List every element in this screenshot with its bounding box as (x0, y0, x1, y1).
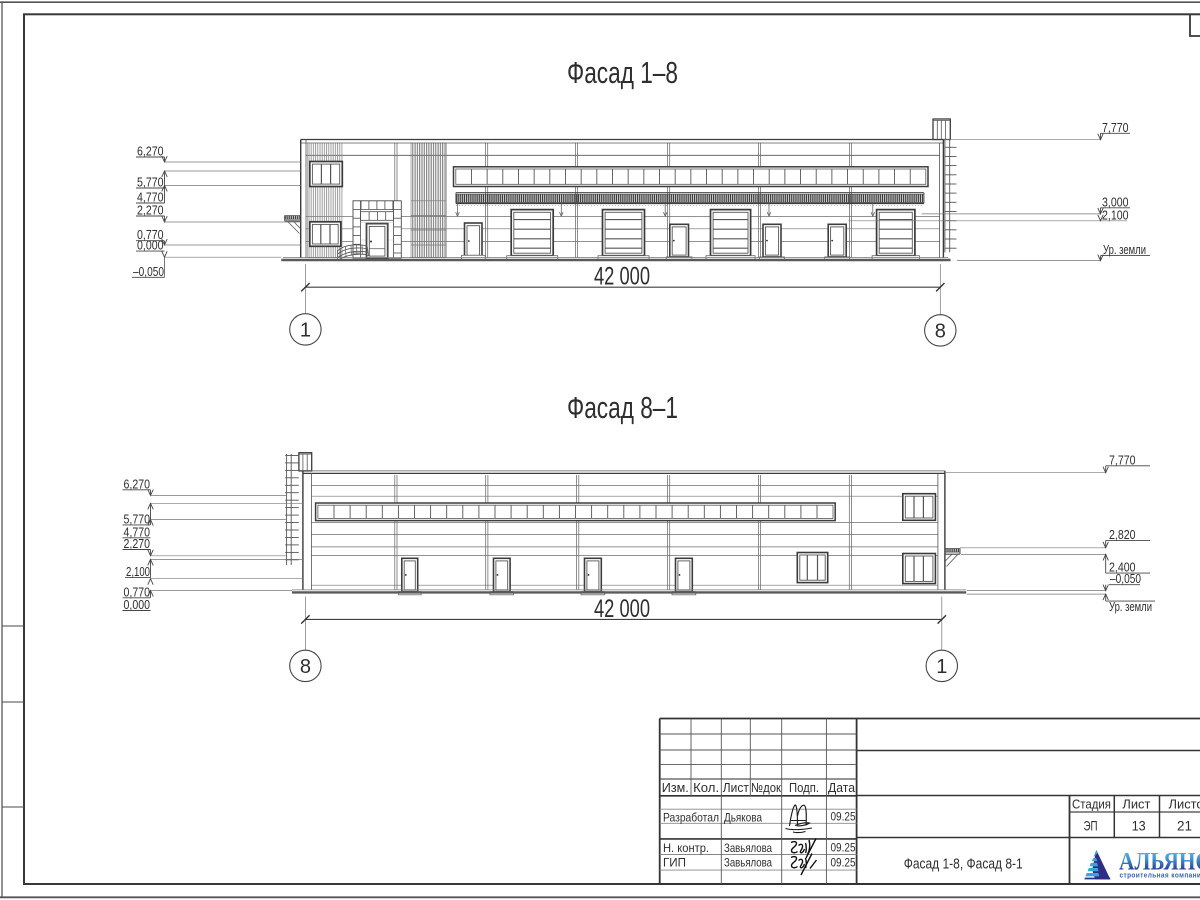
svg-text:Разработал: Разработал (663, 811, 719, 825)
svg-text:5,770: 5,770 (137, 175, 164, 190)
svg-text:Н. контр.: Н. контр. (663, 841, 709, 855)
svg-text:Стадия: Стадия (1072, 797, 1111, 812)
svg-text:2,100: 2,100 (1102, 207, 1129, 222)
svg-text:42 000: 42 000 (594, 595, 650, 623)
svg-text:Фасад 8–1: Фасад 8–1 (567, 390, 678, 425)
svg-text:09.25: 09.25 (831, 810, 856, 824)
svg-text:09.25: 09.25 (831, 855, 856, 869)
svg-text:0,000: 0,000 (137, 238, 164, 253)
svg-text:Лист: Лист (1122, 797, 1150, 812)
svg-text:Изм.: Изм. (662, 780, 689, 795)
svg-text:АЛЬЯНС: АЛЬЯНС (1119, 849, 1200, 876)
svg-text:7,770: 7,770 (1102, 120, 1129, 135)
svg-text:2,270: 2,270 (137, 203, 164, 218)
svg-text:2,820: 2,820 (1109, 527, 1136, 542)
svg-text:Фасад 1–8: Фасад 1–8 (567, 55, 678, 90)
svg-text:Ур. земли: Ур. земли (1103, 242, 1146, 257)
svg-text:Дата: Дата (828, 780, 856, 795)
svg-text:Подп.: Подп. (789, 780, 819, 795)
svg-text:Кол.: Кол. (693, 780, 719, 795)
svg-text:13: 13 (1132, 817, 1146, 833)
svg-text:09.25: 09.25 (831, 840, 856, 854)
svg-text:21: 21 (1177, 817, 1192, 833)
svg-text:–0,050: –0,050 (1110, 571, 1141, 586)
svg-text:Лист: Лист (723, 780, 749, 795)
svg-text:Ур. земли: Ур. земли (1109, 599, 1152, 614)
svg-text:№док: №док (751, 780, 781, 795)
svg-text:ГИП: ГИП (663, 856, 686, 870)
svg-text:2,270: 2,270 (124, 536, 151, 551)
svg-text:Завьялова: Завьялова (724, 841, 772, 855)
svg-text:Завьялова: Завьялова (724, 856, 772, 870)
svg-text:6,270: 6,270 (137, 144, 164, 159)
svg-text:Листов: Листов (1169, 797, 1200, 812)
svg-text:7,770: 7,770 (1109, 452, 1136, 467)
svg-text:2,100: 2,100 (126, 564, 150, 579)
svg-text:строительная компания: строительная компания (1120, 873, 1200, 880)
svg-text:ЭП: ЭП (1084, 817, 1098, 833)
svg-text:1: 1 (936, 656, 947, 678)
svg-text:Дьякова: Дьякова (724, 811, 762, 825)
svg-text:0,000: 0,000 (124, 597, 151, 612)
svg-text:8: 8 (300, 656, 311, 678)
svg-text:–0,050: –0,050 (133, 264, 164, 279)
svg-text:Фасад 1-8, Фасад 8-1: Фасад 1-8, Фасад 8-1 (904, 857, 1023, 873)
svg-text:42 000: 42 000 (594, 263, 650, 291)
svg-text:6,270: 6,270 (124, 476, 151, 491)
svg-text:1: 1 (300, 320, 311, 342)
svg-text:8: 8 (935, 321, 946, 343)
